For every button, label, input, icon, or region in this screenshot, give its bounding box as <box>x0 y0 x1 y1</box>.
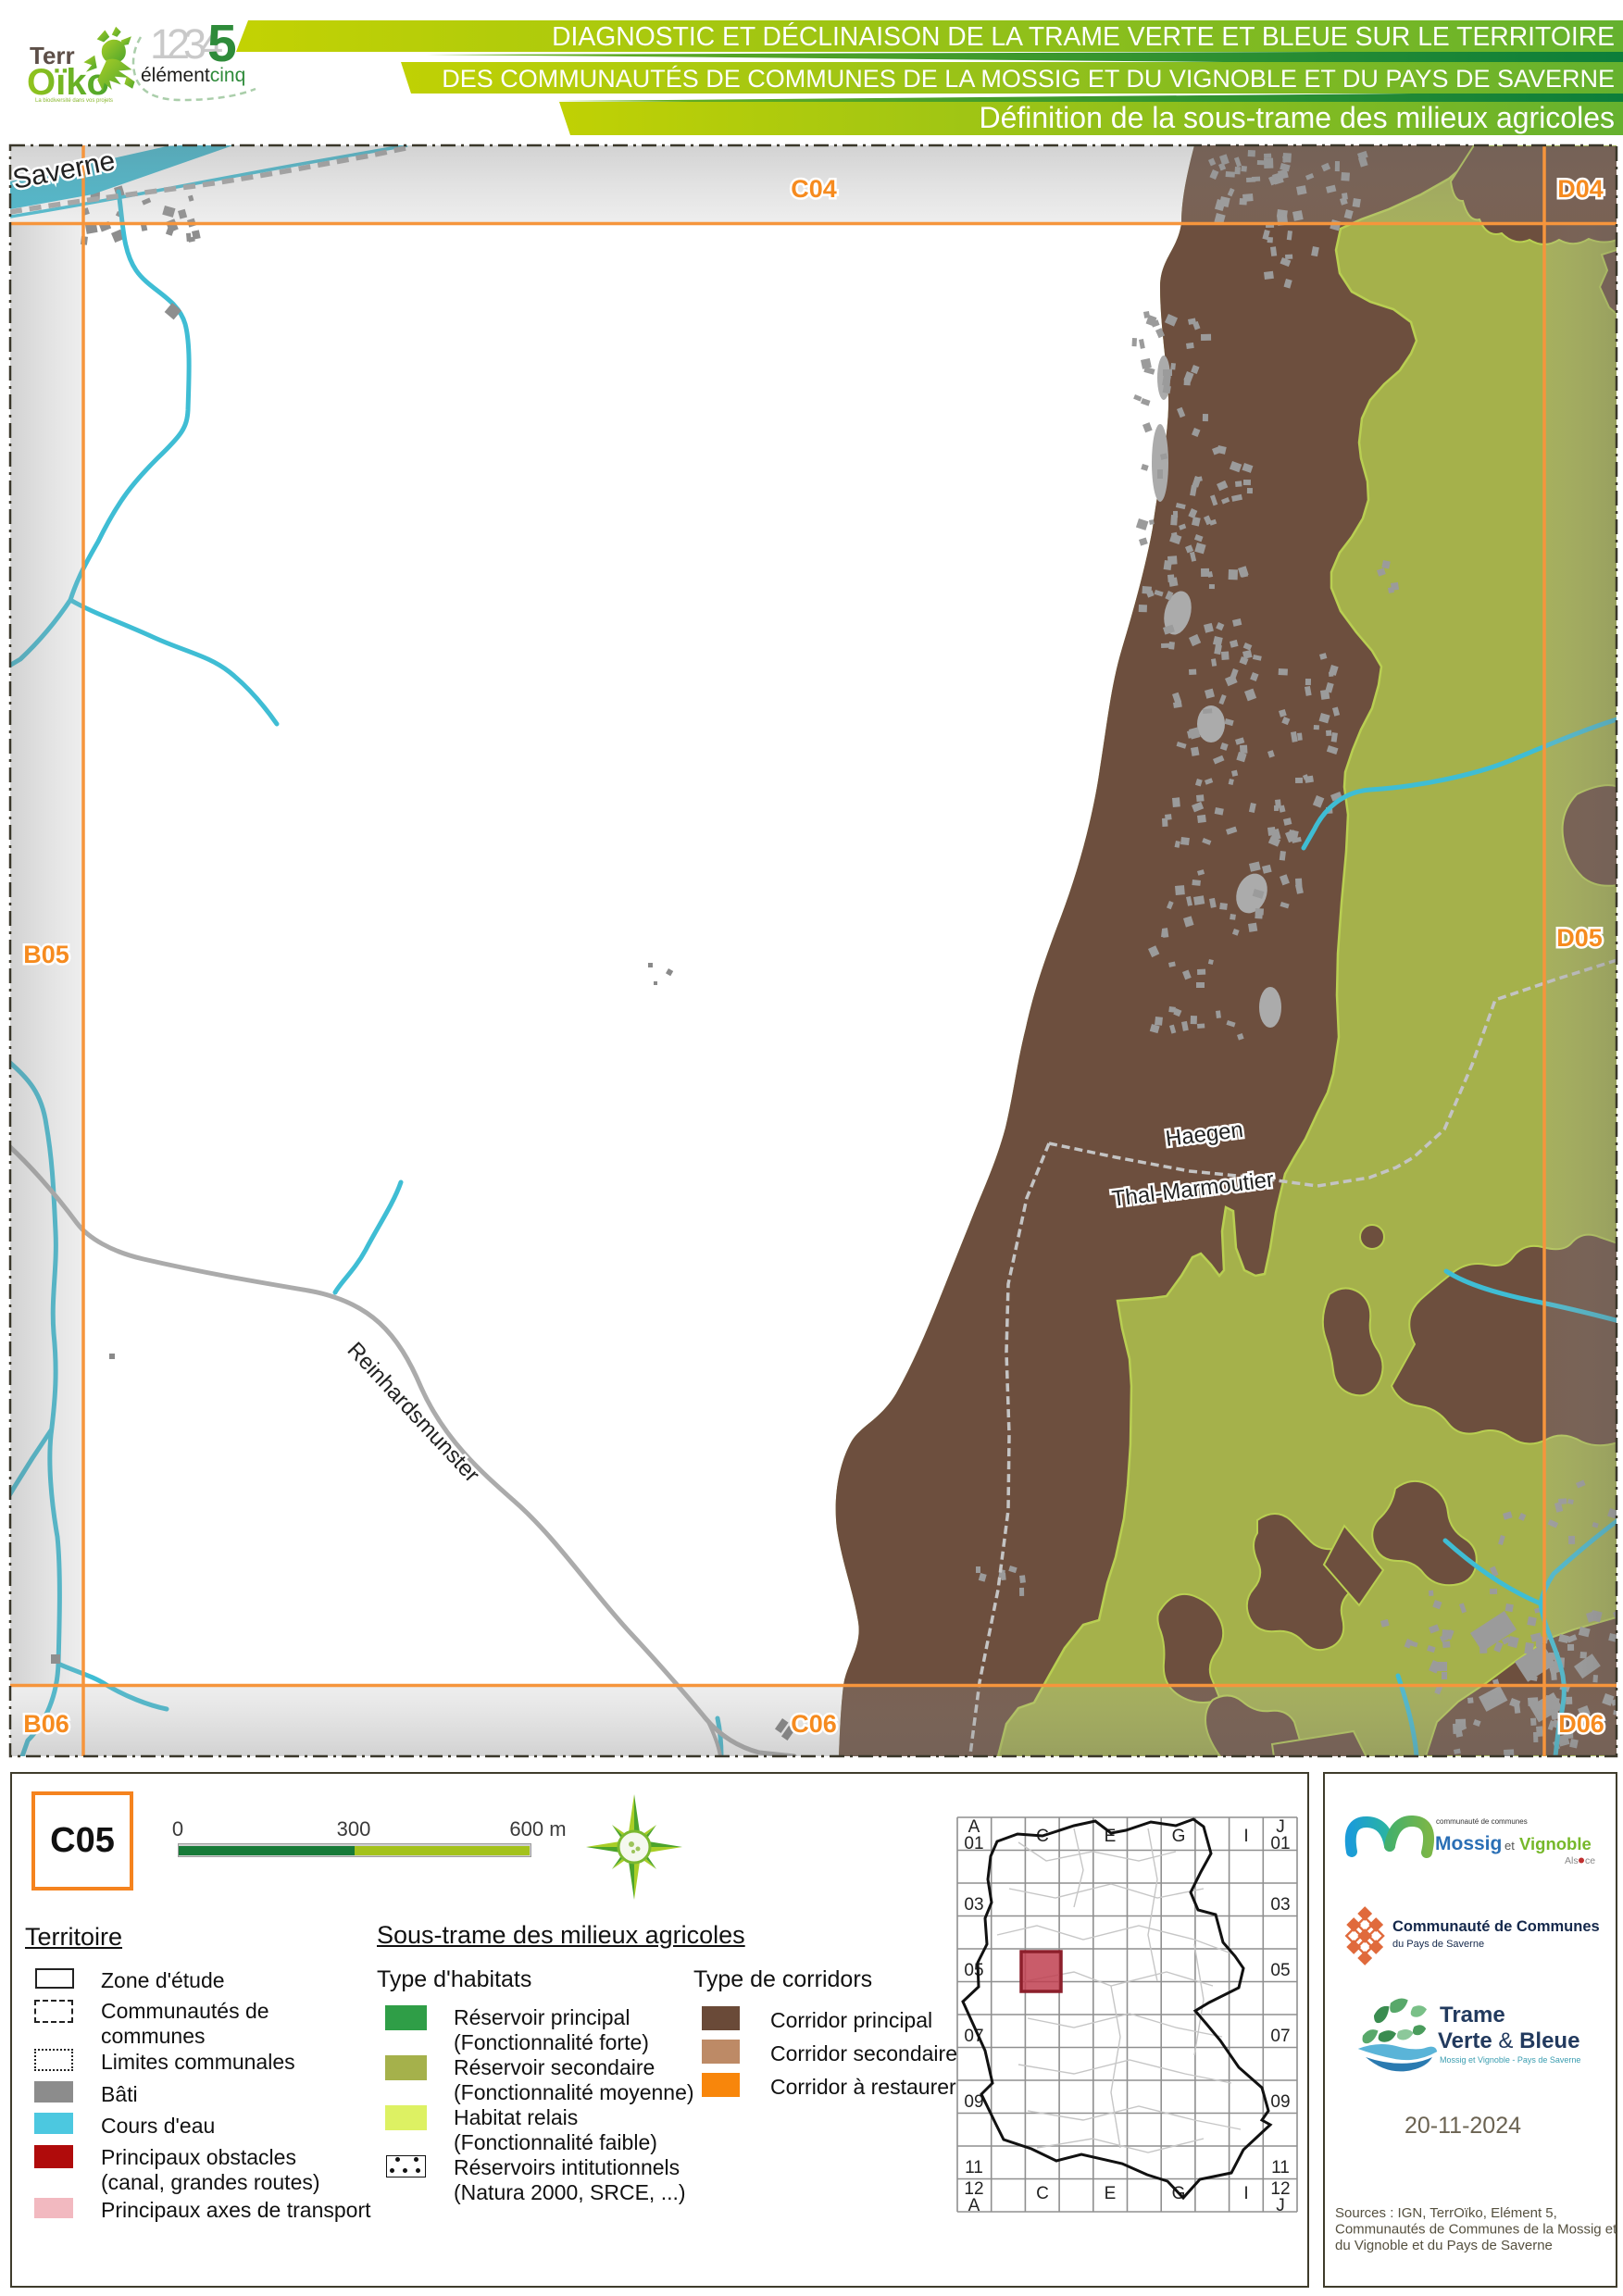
svg-text:J: J <box>1276 2196 1285 2215</box>
svg-text:03: 03 <box>964 1895 983 1915</box>
svg-text:élémentcinq: élémentcinq <box>141 65 245 86</box>
svg-text:Mossig et Vignoble - Pays de S: Mossig et Vignoble - Pays de Saverne <box>1440 2055 1580 2065</box>
svg-text:05: 05 <box>964 1961 983 1980</box>
svg-text:D05: D05 <box>1556 924 1603 952</box>
svg-text:B06: B06 <box>23 1710 69 1738</box>
svg-text:E: E <box>1105 2184 1117 2203</box>
svg-text:DIAGNOSTIC ET DÉCLINAISON DE L: DIAGNOSTIC ET DÉCLINAISON DE LA TRAME VE… <box>552 21 1615 51</box>
svg-text:20-11-2024: 20-11-2024 <box>1405 2113 1521 2139</box>
svg-text:05: 05 <box>1270 1961 1290 1980</box>
svg-text:C04: C04 <box>791 175 837 203</box>
svg-text:G: G <box>1172 1827 1186 1846</box>
svg-text:du Vignoble et du Pays de Save: du Vignoble et du Pays de Saverne <box>1335 2238 1553 2253</box>
svg-text:communauté de communes: communauté de communes <box>1436 1817 1528 1826</box>
svg-text:D04: D04 <box>1557 175 1604 203</box>
svg-text:I: I <box>1243 2184 1248 2203</box>
svg-text:C06: C06 <box>791 1710 837 1738</box>
svg-text:11: 11 <box>1271 2158 1290 2177</box>
svg-text:09: 09 <box>1270 2092 1290 2112</box>
svg-text:Mossig: Mossig <box>1435 1833 1502 1854</box>
svg-text:Verte & Bleue: Verte & Bleue <box>1438 2028 1579 2053</box>
svg-text:I: I <box>1243 1827 1248 1846</box>
svg-text:La biodiversité dans vos proje: La biodiversité dans vos projets <box>35 98 113 104</box>
svg-text:Als: Als <box>1565 1855 1579 1866</box>
svg-text:07: 07 <box>1270 2027 1290 2046</box>
svg-text:Communautés de Communes de la: Communautés de Communes de la Mossig et <box>1335 2222 1617 2238</box>
svg-text:Oïko: Oïko <box>27 62 109 103</box>
svg-text:03: 03 <box>1270 1895 1290 1915</box>
svg-text:D06: D06 <box>1558 1710 1604 1738</box>
svg-text:11: 11 <box>965 2158 983 2177</box>
svg-text:Définition de la sous-trame de: Définition de la sous-trame des milieux … <box>979 101 1615 134</box>
svg-text:01: 01 <box>1270 1834 1290 1853</box>
svg-text:DES COMMUNAUTÉS DE COMMUNES DE: DES COMMUNAUTÉS DE COMMUNES DE LA MOSSIG… <box>442 65 1615 93</box>
svg-text:Vignoble: Vignoble <box>1519 1834 1592 1853</box>
svg-text:A: A <box>968 2196 980 2215</box>
svg-text:C: C <box>1036 2184 1049 2203</box>
svg-text:01: 01 <box>964 1834 983 1853</box>
svg-text:du Pays de Saverne: du Pays de Saverne <box>1392 1939 1484 1950</box>
svg-text:B05: B05 <box>23 941 69 968</box>
svg-text:ce: ce <box>1585 1855 1595 1866</box>
svg-text:et: et <box>1504 1839 1515 1853</box>
svg-text:Trame: Trame <box>1440 2003 1505 2028</box>
svg-text:Communauté de Communes: Communauté de Communes <box>1392 1918 1600 1935</box>
svg-text:Sources : IGN, TerrOïko, Eléme: Sources : IGN, TerrOïko, Elément 5, <box>1335 2205 1557 2221</box>
